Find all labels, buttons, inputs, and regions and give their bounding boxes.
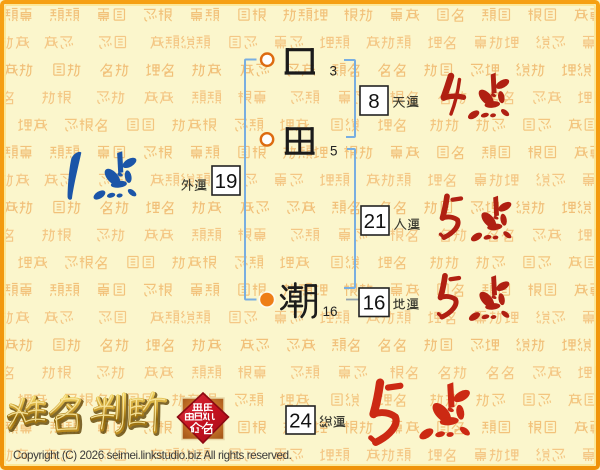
svg-text:3: 3 bbox=[330, 64, 338, 79]
svg-text:19: 19 bbox=[215, 170, 238, 193]
svg-text:8: 8 bbox=[368, 90, 379, 113]
svg-text:16: 16 bbox=[323, 304, 338, 319]
svg-text:5: 5 bbox=[330, 144, 338, 159]
svg-text:24: 24 bbox=[289, 409, 312, 432]
svg-text:21: 21 bbox=[364, 210, 387, 233]
svg-text:Copyright (C) 2026 seimei.link: Copyright (C) 2026 seimei.linkstudio.biz… bbox=[13, 449, 292, 462]
svg-text:16: 16 bbox=[363, 292, 386, 315]
